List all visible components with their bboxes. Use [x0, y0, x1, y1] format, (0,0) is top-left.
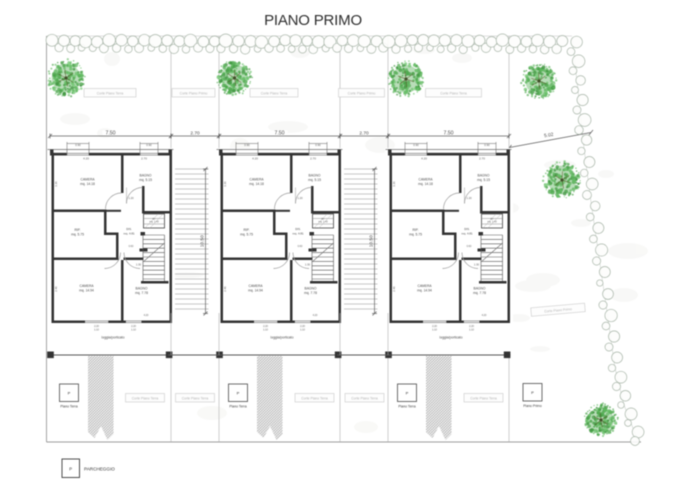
svg-text:P: P — [69, 467, 72, 472]
svg-text:Piano Terra: Piano Terra — [60, 405, 77, 409]
svg-text:2.70: 2.70 — [190, 131, 200, 137]
svg-text:Corte Piano Terra: Corte Piano Terra — [440, 91, 467, 95]
svg-text:Corte Piano Terra: Corte Piano Terra — [261, 91, 288, 95]
svg-text:2.70: 2.70 — [359, 131, 369, 137]
svg-text:P: P — [237, 391, 240, 396]
svg-text:P: P — [68, 391, 71, 396]
svg-text:Corte Piano Terra: Corte Piano Terra — [97, 91, 124, 95]
svg-text:10.50: 10.50 — [200, 235, 206, 247]
svg-text:Corte Piano Terra: Corte Piano Terra — [351, 396, 378, 400]
svg-text:10.50: 10.50 — [369, 235, 375, 247]
svg-text:Corte Piano Primo: Corte Piano Primo — [180, 91, 208, 95]
svg-text:7.50: 7.50 — [274, 131, 284, 137]
svg-text:7.50: 7.50 — [443, 131, 453, 137]
svg-text:Piano Terra: Piano Terra — [398, 405, 415, 409]
svg-text:P: P — [531, 390, 534, 395]
svg-text:7.50: 7.50 — [105, 131, 115, 137]
svg-text:P: P — [406, 391, 409, 396]
svg-text:Piano Terra: Piano Terra — [229, 405, 246, 409]
svg-text:Corte Piano Primo: Corte Piano Primo — [348, 91, 376, 95]
svg-text:Corte Piano Terra: Corte Piano Terra — [301, 396, 328, 400]
svg-text:PIANO PRIMO: PIANO PRIMO — [264, 12, 362, 29]
svg-text:PARCHEGGIO: PARCHEGGIO — [84, 467, 115, 472]
svg-text:Corte Piano Terra: Corte Piano Terra — [132, 396, 159, 400]
svg-text:Piano Primo: Piano Primo — [523, 404, 542, 408]
svg-text:Corte Piano Terra: Corte Piano Terra — [182, 396, 209, 400]
svg-text:Corte Piano Terra: Corte Piano Terra — [470, 396, 497, 400]
